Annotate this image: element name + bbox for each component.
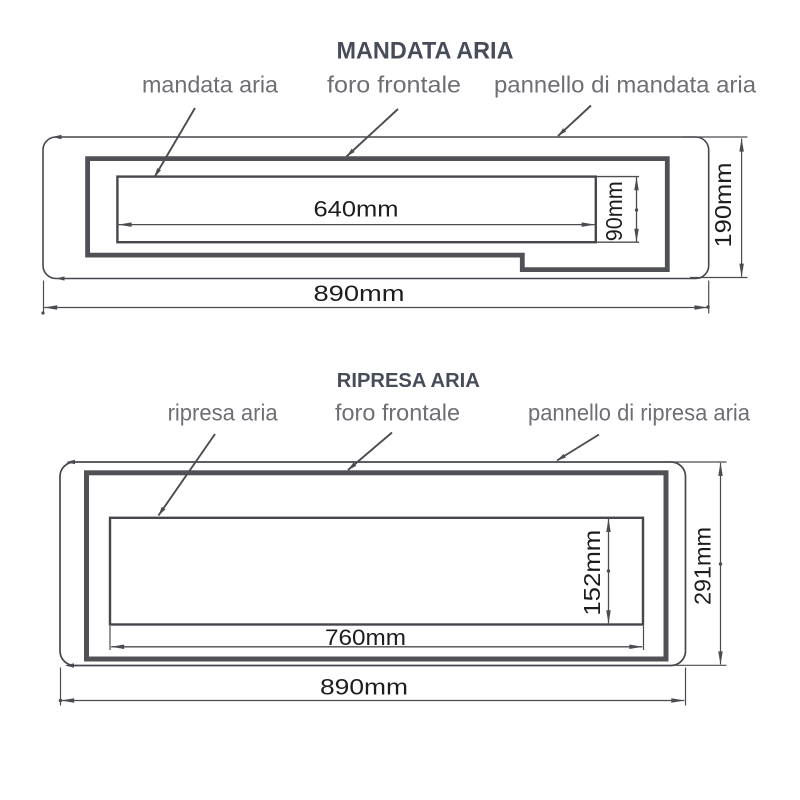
svg-text:640mm: 640mm [314,197,399,222]
svg-text:pannello di ripresa aria: pannello di ripresa aria [528,400,750,426]
svg-text:890mm: 890mm [314,281,405,306]
svg-text:foro frontale: foro frontale [327,72,461,98]
svg-text:RIPRESA ARIA: RIPRESA ARIA [337,370,480,392]
svg-text:190mm: 190mm [710,163,736,248]
svg-text:MANDATA ARIA: MANDATA ARIA [337,38,514,65]
svg-text:mandata aria: mandata aria [142,72,278,98]
svg-text:291mm: 291mm [689,527,715,605]
svg-text:760mm: 760mm [325,625,406,650]
svg-text:890mm: 890mm [320,675,408,700]
svg-text:152mm: 152mm [579,530,605,616]
svg-text:ripresa aria: ripresa aria [168,400,278,426]
svg-text:foro frontale: foro frontale [335,400,460,426]
svg-text:pannello di mandata aria: pannello di mandata aria [494,72,756,98]
svg-text:90mm: 90mm [601,181,627,241]
